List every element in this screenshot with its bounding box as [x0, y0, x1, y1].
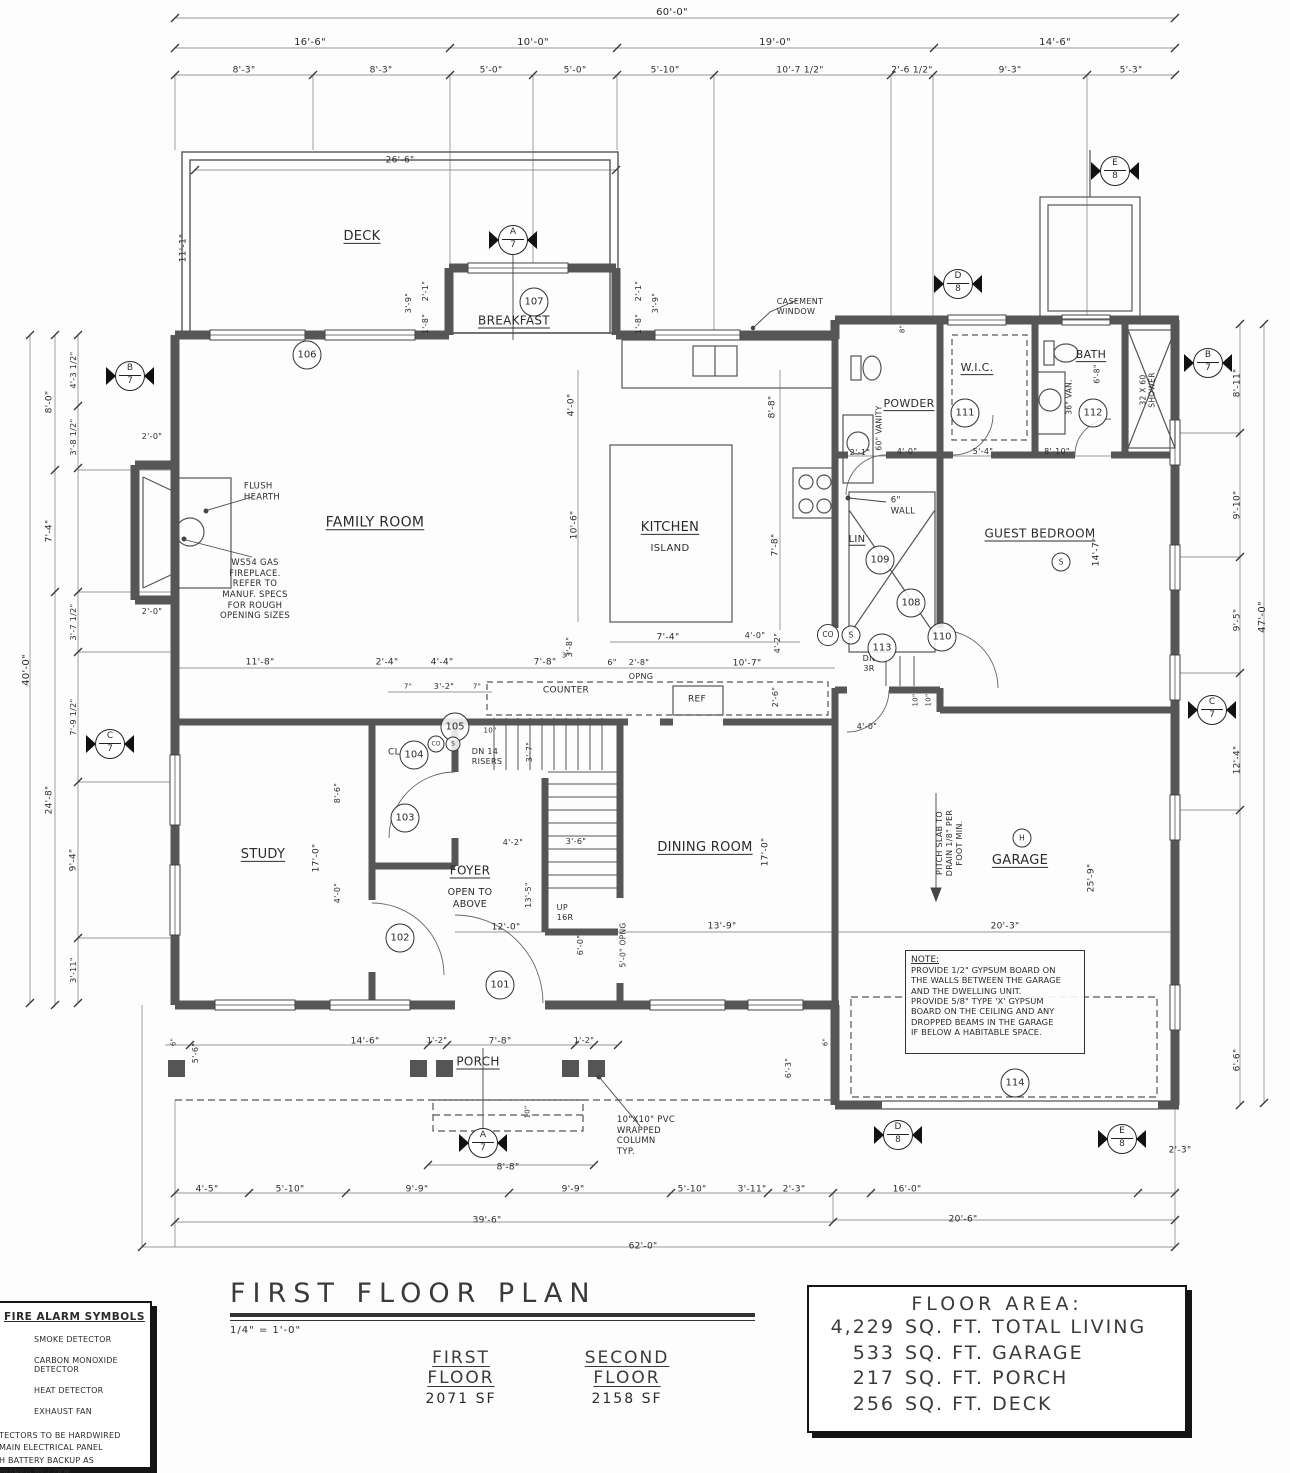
plan-label: 8'-3"	[370, 65, 393, 76]
plan-label: COUNTER	[543, 685, 589, 696]
floor-area-label: SQ. FT. PORCH	[905, 1366, 1068, 1392]
plan-label: 36" VAN.	[1064, 379, 1073, 415]
plan-label: ISLAND	[651, 543, 690, 556]
plan-label: 24'-8"	[44, 786, 55, 815]
marker-letter: B	[115, 363, 145, 373]
plan-label: PORCH	[456, 1055, 499, 1070]
floor-area-row: 256SQ. FT. DECK	[809, 1392, 1185, 1418]
plan-label: 2'-3"	[783, 1184, 806, 1195]
plan-label: 4'-2"	[773, 633, 783, 653]
plan-label: FOYER	[450, 864, 490, 879]
floor-area-label: SQ. FT. GARAGE	[905, 1341, 1084, 1367]
plan-label: 2'-0"	[142, 607, 162, 617]
plan-label: 4'-0"	[897, 447, 917, 457]
marker-triangle-right-icon	[912, 1126, 922, 1144]
plan-label: 10"X10" PVC WRAPPED COLUMN TYP.	[617, 1115, 675, 1158]
plan-label: LIN	[849, 534, 866, 547]
plan-label: 9'-4"	[68, 849, 79, 872]
plan-label: 12'-0"	[492, 922, 521, 933]
plan-label: 6'-0"	[576, 935, 586, 955]
legend-note-line: QUIRED BY CODE.	[0, 1467, 150, 1473]
plan-label: FAMILY ROOM	[326, 514, 425, 532]
plan-label: 7'-8"	[489, 1036, 512, 1047]
marker-number: 8	[1100, 171, 1130, 181]
plan-label: 7'-8"	[534, 657, 557, 668]
plan-label: GUEST BEDROOM	[985, 527, 1096, 542]
plan-label: 9'-9"	[406, 1184, 429, 1195]
plan-label: 1'-8"	[634, 314, 644, 334]
door-tag-104: 104	[400, 741, 429, 770]
plan-label: 2'-1"	[634, 281, 644, 301]
plan-label: 60'-0"	[656, 7, 688, 20]
floor-area-title: FLOOR AREA:	[809, 1293, 1185, 1315]
plan-label: UP 16R	[557, 903, 574, 923]
plan-label: 26'-6"	[386, 155, 415, 166]
section-marker-E8: E8	[1100, 156, 1130, 186]
section-marker-A7: A7	[468, 1128, 498, 1158]
plan-label: 4'-2"	[503, 838, 523, 848]
plan-label: 16'-0"	[893, 1184, 922, 1195]
section-marker-C7: C7	[95, 729, 125, 759]
plan-label: 7'-8"	[770, 534, 781, 557]
second-floor-area: SECOND FLOOR 2158 SF	[552, 1348, 702, 1407]
plan-label: 5'-3"	[1120, 65, 1143, 76]
plan-label: GARAGE	[992, 853, 1048, 869]
marker-triangle-right-icon	[1136, 1130, 1146, 1148]
plan-label: 5'-10"	[651, 65, 680, 76]
door-tag-101: 101	[486, 971, 515, 1000]
first-floor-label: FIRST FLOOR	[396, 1348, 526, 1388]
plan-label: 11'-1"	[178, 234, 189, 263]
floor-area-label: SQ. FT. TOTAL LIVING	[905, 1315, 1146, 1341]
marker-number: 7	[1197, 710, 1227, 720]
plan-label: POWDER	[883, 397, 934, 411]
drawing-title: FIRST FLOOR PLAN	[230, 1278, 770, 1309]
floor-area-row: 217SQ. FT. PORCH	[809, 1366, 1185, 1392]
plan-label: 2'-6 1/2"	[891, 65, 932, 76]
plan-label: 10"	[912, 693, 921, 706]
plan-label: OPEN TO ABOVE	[448, 887, 493, 911]
plan-label: BREAKFAST	[478, 314, 550, 329]
section-marker-D8: D8	[883, 1120, 913, 1150]
legend-note: TECTORS TO BE HARDWIRED MAIN ELECTRICAL …	[0, 1430, 150, 1473]
legend-item: EXHAUST FAN	[0, 1407, 150, 1416]
marker-number: 7	[468, 1143, 498, 1153]
marker-triangle-right-icon	[1129, 162, 1139, 180]
plan-label: 8'-3"	[233, 65, 256, 76]
plan-label: PITCH SLAB TO DRAIN 1/8" PER FOOT MIN.	[935, 810, 965, 877]
symbol-tag-s: S	[842, 626, 861, 645]
plan-label: 8'-8"	[767, 396, 778, 419]
plan-label: 4'-0"	[745, 631, 765, 641]
plan-label: 7'-4"	[657, 632, 680, 643]
floor-area-row: 533SQ. FT. GARAGE	[809, 1341, 1185, 1367]
section-marker-D8: D8	[943, 269, 973, 299]
plan-label: 3'-7"	[525, 742, 535, 762]
plan-label: 3'-11"	[69, 957, 79, 983]
marker-letter: E	[1100, 158, 1130, 168]
plan-label: 16'-6"	[294, 37, 326, 50]
floor-area-qty: 4,229	[809, 1315, 895, 1341]
plan-label: 39'-6"	[473, 1215, 502, 1226]
door-tag-103: 103	[391, 804, 420, 833]
drawing-scale: 1/4" = 1'-0"	[230, 1325, 770, 1336]
door-tag-107: 107	[520, 288, 549, 317]
plan-label: STUDY	[241, 847, 285, 863]
plan-label: 10'-6"	[569, 511, 580, 540]
plan-label: 20'-6"	[949, 1214, 978, 1225]
plan-label: 8'-0"	[44, 391, 55, 414]
plan-label: 9'-5"	[1232, 609, 1243, 632]
plan-label: 11'-8"	[246, 657, 275, 668]
plan-label: 1'-8"	[421, 314, 431, 334]
floor-area-qty: 256	[809, 1392, 895, 1418]
marker-triangle-right-icon	[1222, 354, 1232, 372]
plan-label: 17'-0"	[311, 844, 322, 873]
plan-label: 6'-3"	[784, 1058, 794, 1078]
door-tag-111: 111	[951, 399, 980, 428]
plan-label: DECK	[343, 229, 380, 245]
marker-number: 8	[1107, 1139, 1137, 1149]
plan-label: 5'-0"	[480, 65, 503, 76]
plan-label: 47'-0"	[1257, 601, 1270, 633]
symbol-tag-co: CO	[817, 624, 839, 646]
marker-number: 7	[498, 240, 528, 250]
fire-alarm-legend: FIRE ALARM SYMBOLS SMOKE DETECTORCARBON …	[0, 1301, 152, 1469]
title-block: FIRST FLOOR PLAN 1/4" = 1'-0"	[230, 1278, 770, 1336]
legend-title: FIRE ALARM SYMBOLS	[0, 1311, 150, 1323]
marker-triangle-right-icon	[527, 231, 537, 249]
note-body: PROVIDE 1/2" GYPSUM BOARD ON THE WALLS B…	[911, 965, 1079, 1038]
floor-area-rows: 4,229SQ. FT. TOTAL LIVING533SQ. FT. GARA…	[809, 1315, 1185, 1418]
marker-triangle-right-icon	[972, 275, 982, 293]
plan-label: 13'-5"	[524, 882, 534, 908]
plan-label: 7"	[473, 683, 481, 692]
legend-note-line: TECTORS TO BE HARDWIRED	[0, 1430, 150, 1442]
plan-label: 8'-10"	[1044, 447, 1070, 457]
plan-label: 9'-9"	[562, 1184, 585, 1195]
floor-area-qty: 533	[809, 1341, 895, 1367]
section-marker-B7: B7	[115, 361, 145, 391]
door-tag-106: 106	[293, 341, 322, 370]
plan-label: 5'-6"	[191, 1043, 201, 1063]
plan-label: 8'-6"	[333, 783, 343, 803]
door-tag-113: 113	[868, 634, 897, 663]
floor-area-qty: 217	[809, 1366, 895, 1392]
marker-number: 7	[95, 744, 125, 754]
legend-note-line: H BATTERY BACKUP AS	[0, 1455, 150, 1467]
plan-label: 3'-9"	[651, 293, 661, 313]
plan-label: CASEMENT WINDOW	[777, 297, 823, 317]
symbol-tag-s: S	[1052, 553, 1071, 572]
symbol-tag-h: H	[1013, 829, 1032, 848]
plan-label: 9'-10"	[1232, 491, 1243, 520]
plan-label: OPNG	[629, 672, 654, 682]
plan-label: 6'-6"	[1232, 1049, 1243, 1072]
plan-label: 2'-1"	[850, 448, 870, 458]
marker-number: 8	[943, 284, 973, 294]
plan-label: 4'-5"	[196, 1184, 219, 1195]
plan-label: 6'-8"	[1092, 364, 1101, 383]
plan-label: 60" VANITY	[874, 405, 883, 450]
legend-item: SMOKE DETECTOR	[0, 1335, 150, 1344]
plan-label: 5'-4"	[973, 447, 993, 457]
plan-label: 10"	[524, 1105, 533, 1118]
plan-label: 13'-9"	[708, 921, 737, 932]
plan-label: 2'-6"	[771, 687, 781, 707]
plan-label: 10'-0"	[517, 37, 549, 50]
plan-label: 2'-1"	[421, 281, 431, 301]
plan-label: 4'-4"	[431, 657, 454, 668]
plan-label: REF	[688, 694, 706, 705]
plan-label: 5'-0"	[564, 65, 587, 76]
marker-triangle-right-icon	[144, 367, 154, 385]
section-marker-A7: A7	[498, 225, 528, 255]
plan-label: 40'-0"	[21, 654, 34, 686]
plan-label: 5'-0" OPNG	[618, 923, 627, 968]
plan-label: 3'-7 1/2"	[69, 603, 79, 640]
plan-label: 6"	[607, 658, 616, 668]
note-title: NOTE:	[911, 955, 1079, 965]
door-tag-110: 110	[928, 623, 957, 652]
legend-item: CARBON MONOXIDE DETECTOR	[0, 1356, 150, 1374]
door-tag-112: 112	[1079, 399, 1108, 428]
plan-label: 62'-0"	[629, 1241, 658, 1252]
plan-label: 1'-2"	[574, 1036, 594, 1046]
plan-label: 3'-2"	[434, 682, 454, 692]
door-tag-114: 114	[1001, 1069, 1030, 1098]
plan-label: 2'-4"	[376, 657, 399, 668]
plan-label: 4'-0"	[857, 722, 877, 732]
symbol-tag-co: CO	[428, 736, 445, 753]
plan-label: 10'-7"	[733, 658, 762, 669]
plan-label: CL	[388, 747, 400, 758]
plan-label: 20'-3"	[991, 921, 1020, 932]
plan-label: 5'-10"	[276, 1184, 305, 1195]
legend-items: SMOKE DETECTORCARBON MONOXIDE DETECTORHE…	[0, 1335, 150, 1416]
garage-gypsum-note: NOTE: PROVIDE 1/2" GYPSUM BOARD ON THE W…	[905, 950, 1085, 1054]
plan-label: 6"	[822, 1038, 831, 1046]
plan-label: 3'-8"	[565, 637, 575, 657]
plan-label: 9'-3"	[999, 65, 1022, 76]
plan-label: 4'-3 1/2"	[69, 351, 79, 388]
door-tag-102: 102	[386, 924, 415, 953]
plan-label: 32 X 60 SHOWER	[1139, 372, 1158, 407]
plan-label: W.I.C.	[961, 361, 994, 375]
second-floor-value: 2158 SF	[552, 1391, 702, 1407]
plan-label: 19'-0"	[759, 37, 791, 50]
plan-label: WS54 GAS FIREPLACE. REFER TO MANUF. SPEC…	[220, 558, 290, 622]
plan-label: 7'-4"	[44, 520, 55, 543]
marker-number: 7	[115, 376, 145, 386]
marker-letter: C	[95, 731, 125, 741]
marker-letter: E	[1107, 1126, 1137, 1136]
plan-label: 14'-6"	[1039, 37, 1071, 50]
plan-label: 14'-6"	[351, 1036, 380, 1047]
plan-label: 2'-0"	[142, 432, 162, 442]
plan-label: 10'-7 1/2"	[776, 65, 823, 76]
plan-label: 17'-0"	[760, 838, 771, 867]
section-marker-E8: E8	[1107, 1124, 1137, 1154]
plan-label: 5'-10"	[678, 1184, 707, 1195]
floor-area-row: 4,229SQ. FT. TOTAL LIVING	[809, 1315, 1185, 1341]
marker-number: 8	[883, 1135, 913, 1145]
marker-triangle-right-icon	[1226, 701, 1236, 719]
plan-label: FLUSH HEARTH	[244, 481, 280, 502]
marker-letter: B	[1193, 350, 1223, 360]
plan-label: 1'-2"	[427, 1036, 447, 1046]
plan-label: 3'-8 1/2"	[69, 418, 79, 455]
section-marker-C7: C7	[1197, 695, 1227, 725]
title-rule	[230, 1313, 755, 1321]
marker-letter: A	[468, 1130, 498, 1140]
plan-label: KITCHEN	[641, 520, 699, 536]
marker-letter: A	[498, 227, 528, 237]
plan-label: 3'-6"	[566, 837, 586, 847]
marker-letter: D	[943, 271, 973, 281]
plan-label: 14'-7"	[1091, 538, 1102, 567]
plan-label: 10"	[483, 727, 496, 736]
first-floor-value: 2071 SF	[396, 1391, 526, 1407]
floor-area-label: SQ. FT. DECK	[905, 1392, 1052, 1418]
plan-label: 6"	[170, 1038, 179, 1046]
marker-letter: D	[883, 1122, 913, 1132]
plan-annotation-overlay: NOTE: PROVIDE 1/2" GYPSUM BOARD ON THE W…	[0, 0, 1290, 1473]
marker-number: 7	[1193, 363, 1223, 373]
marker-letter: C	[1197, 697, 1227, 707]
plan-label: DN 14 RISERS	[472, 747, 503, 767]
plan-label: 8'-8"	[497, 1162, 520, 1173]
plan-label: 25'-9"	[1086, 864, 1097, 893]
plan-label: 3'-11"	[738, 1184, 767, 1195]
first-floor-area: FIRST FLOOR 2071 SF	[396, 1348, 526, 1407]
plan-label: 12'-4"	[1232, 746, 1243, 775]
plan-label: BATH	[1076, 348, 1106, 362]
floor-plan-sheet: NOTE: PROVIDE 1/2" GYPSUM BOARD ON THE W…	[0, 0, 1290, 1473]
plan-label: DINING ROOM	[657, 840, 752, 856]
plan-label: 7"	[404, 683, 412, 692]
plan-label: 6" WALL	[891, 495, 915, 516]
plan-label: 8'-11"	[1232, 369, 1243, 398]
floor-area-table: FLOOR AREA: 4,229SQ. FT. TOTAL LIVING533…	[807, 1285, 1187, 1433]
plan-label: 2'-8"	[629, 658, 649, 668]
plan-label: 4'-0"	[333, 883, 343, 903]
plan-label: 4'-0"	[566, 394, 577, 417]
plan-label: 10"	[925, 693, 934, 706]
symbol-tag-s: S	[446, 737, 461, 752]
legend-note-line: MAIN ELECTRICAL PANEL	[0, 1442, 150, 1454]
door-tag-108: 108	[897, 589, 926, 618]
section-marker-B7: B7	[1193, 348, 1223, 378]
plan-label: 7'-9 1/2"	[69, 698, 79, 735]
second-floor-label: SECOND FLOOR	[552, 1348, 702, 1388]
plan-label: 8"	[899, 325, 908, 333]
marker-triangle-right-icon	[497, 1134, 507, 1152]
marker-triangle-right-icon	[124, 735, 134, 753]
plan-label: 2'-3"	[1169, 1145, 1192, 1156]
legend-item: HEAT DETECTOR	[0, 1386, 150, 1395]
door-tag-109: 109	[866, 546, 895, 575]
plan-label: 3'-9"	[404, 293, 414, 313]
